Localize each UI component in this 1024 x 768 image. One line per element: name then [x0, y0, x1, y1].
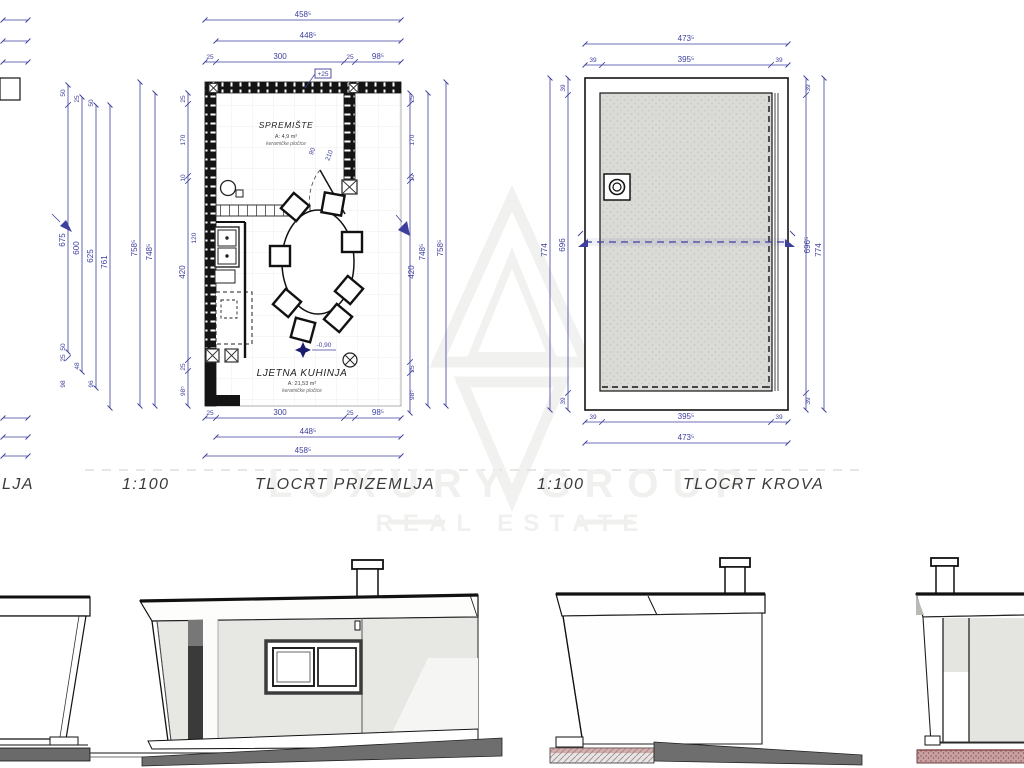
dim-label: 748⁵ [418, 244, 427, 261]
cutoff-drawing-fragment [0, 20, 28, 456]
dim-label: 25 [409, 365, 416, 373]
kitchen-room-name: LJETNA KUHINJA [257, 368, 348, 379]
drawing-canvas: LUXURY GROUP REAL ESTATE [0, 0, 1024, 768]
ground-wedge [654, 742, 862, 765]
chimney-cap [352, 560, 383, 569]
dim-label: 25 [409, 95, 416, 103]
parapet-note-value: +25 [317, 71, 328, 78]
dim-label: 39 [560, 397, 567, 405]
dim-label: 25 [180, 95, 187, 103]
dim-label: 39 [589, 414, 597, 421]
cutoff-wall-fragment [0, 78, 20, 100]
elevation-right-partial [916, 558, 1024, 763]
dim-label: 39 [560, 84, 567, 92]
storage-room-area: A: 4,9 m² [275, 134, 297, 140]
elevation-rear [550, 558, 862, 765]
ground-bar [0, 748, 90, 761]
dim-label: 395⁵ [678, 55, 695, 64]
dim-label: 98⁵ [180, 386, 187, 396]
chimney-cap [931, 558, 958, 566]
dim-label: 448⁵ [300, 31, 317, 40]
dim-label: 696⁵ [803, 237, 812, 254]
dim-label: 10 [409, 174, 416, 182]
dim-label: 39 [805, 84, 812, 92]
dim-label: 25 [74, 95, 81, 103]
dim-label: 25 [206, 410, 214, 417]
dim-label: 300 [273, 52, 287, 61]
dim-label: 10 [180, 174, 187, 182]
glass-panel-small [943, 618, 969, 672]
level-value: -0,90 [317, 342, 332, 349]
dim-label: 300 [273, 408, 287, 417]
dim-label: 420 [178, 265, 187, 279]
dim-label: 96 [88, 380, 95, 388]
dim-label: 458⁵ [295, 10, 312, 19]
scale-label-krov: 1:100 [537, 476, 585, 493]
dim-label: 748⁵ [145, 244, 154, 261]
dim-label: 25 [346, 54, 354, 61]
chimney-symbol [604, 174, 630, 200]
dim-label: 758⁵ [436, 240, 445, 257]
corner-wall-return [205, 395, 240, 406]
dim-label: 50 [60, 89, 67, 97]
dim-label: 170 [180, 134, 187, 145]
dim-label: 25 [180, 363, 187, 371]
dim-label: 39 [805, 397, 812, 405]
dim-label: 39 [775, 414, 783, 421]
title-row: LJA 1:100 TLOCRT PRIZEMLJA 1:100 TLOCRT … [2, 476, 824, 493]
dim-label: 25 [346, 410, 354, 417]
chimney-cap [720, 558, 750, 567]
storage-partition-wall [344, 93, 355, 180]
dim-label: 761 [100, 255, 109, 269]
dim-label: 98⁵ [372, 52, 384, 61]
dim-label: 625 [86, 249, 95, 263]
watermark-subtitle-text: REAL ESTATE [376, 510, 649, 537]
dim-label: 675 [58, 233, 67, 247]
dim-label: 98⁵ [372, 408, 384, 417]
title-krov: TLOCRT KROVA [683, 476, 824, 493]
storage-room-name: SPREMIŠTE [259, 120, 314, 130]
top-wall [205, 82, 401, 93]
dim-label: 420 [407, 265, 416, 279]
cutoff-title-fragment: LJA [2, 476, 34, 493]
dim-label: 774 [814, 243, 823, 257]
dim-label: 696 [558, 238, 567, 252]
vent-mark [355, 621, 360, 630]
kitchen-room-material: keramičke pločice [282, 388, 322, 394]
dim-label: 448⁵ [300, 427, 317, 436]
chimney-body [357, 569, 378, 597]
dim-label: 458⁵ [295, 446, 312, 455]
storage-room-material: keramičke pločice [266, 141, 306, 147]
glass-panel-large [969, 618, 1024, 742]
dim-label: 98 [60, 380, 67, 388]
scale-label-prizemlje: 1:100 [122, 476, 170, 493]
dim-label: 473⁵ [678, 34, 695, 43]
dim-label: 170 [409, 134, 416, 145]
dim-label: 39 [775, 57, 783, 64]
dim-label: 50 [88, 99, 95, 107]
dim-label: 25 [60, 354, 67, 362]
title-prizemlje: TLOCRT PRIZEMLJA [255, 476, 435, 493]
dim-label: 758⁵ [130, 240, 139, 257]
dim-label: 50 [60, 343, 67, 351]
facade [563, 613, 762, 744]
architectural-drawing-sheet: LUXURY GROUP REAL ESTATE [0, 0, 1024, 768]
roof-plan: 473⁵ 39 395⁵ 39 39 395⁵ 39 473⁵ 39 696 3… [540, 34, 824, 443]
round-sink-symbol [221, 181, 236, 196]
roof-slab [916, 594, 1024, 617]
chimney-body [936, 566, 954, 594]
plinth [556, 737, 583, 747]
dim-label: 395⁵ [678, 412, 695, 421]
elevation-wall [0, 616, 86, 739]
roof-slab [556, 594, 765, 616]
kitchen-room-area: A: 21,53 m² [288, 381, 317, 387]
floor-drain-symbol [343, 353, 357, 367]
plinth [925, 736, 940, 745]
chimney-body [725, 567, 745, 594]
dim-label: 25 [206, 54, 214, 61]
dim-label: 48 [74, 362, 81, 370]
dim-label: 600 [72, 241, 81, 255]
dim-label: 98⁵ [409, 390, 416, 400]
dim-label: 473⁵ [678, 433, 695, 442]
dim-label: 774 [540, 243, 549, 257]
dim-label: 39 [589, 57, 597, 64]
floor-plan: 210 90 [52, 10, 446, 456]
elevation-side-main [140, 560, 502, 766]
ground-earth [917, 750, 1024, 763]
counter-width-label: 120 [191, 232, 198, 243]
plinth [50, 737, 78, 745]
